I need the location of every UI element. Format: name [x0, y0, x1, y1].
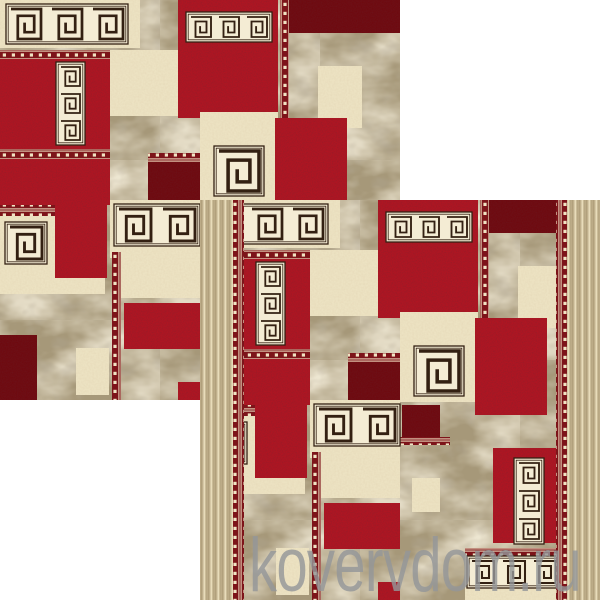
- product-image: kovervdom.ru: [0, 0, 600, 600]
- carpet-photo-front[interactable]: [200, 200, 600, 600]
